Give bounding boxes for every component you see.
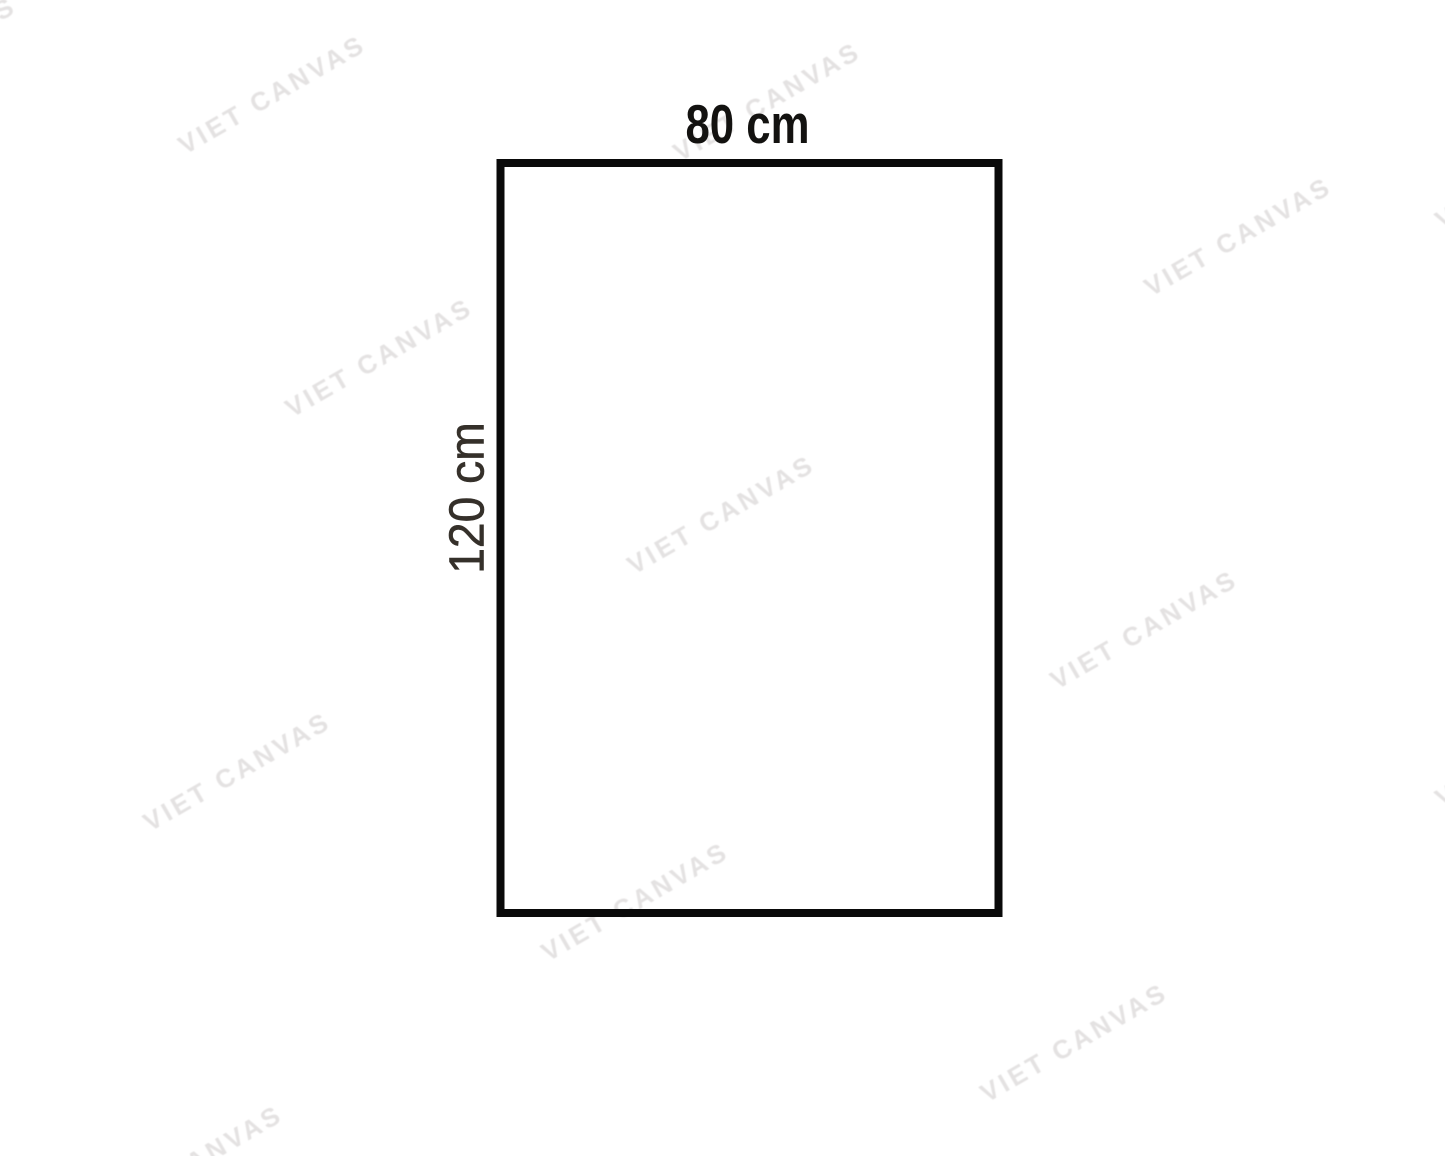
svg-text:120 cm: 120 cm — [440, 422, 495, 574]
svg-text:80 cm: 80 cm — [685, 93, 809, 155]
